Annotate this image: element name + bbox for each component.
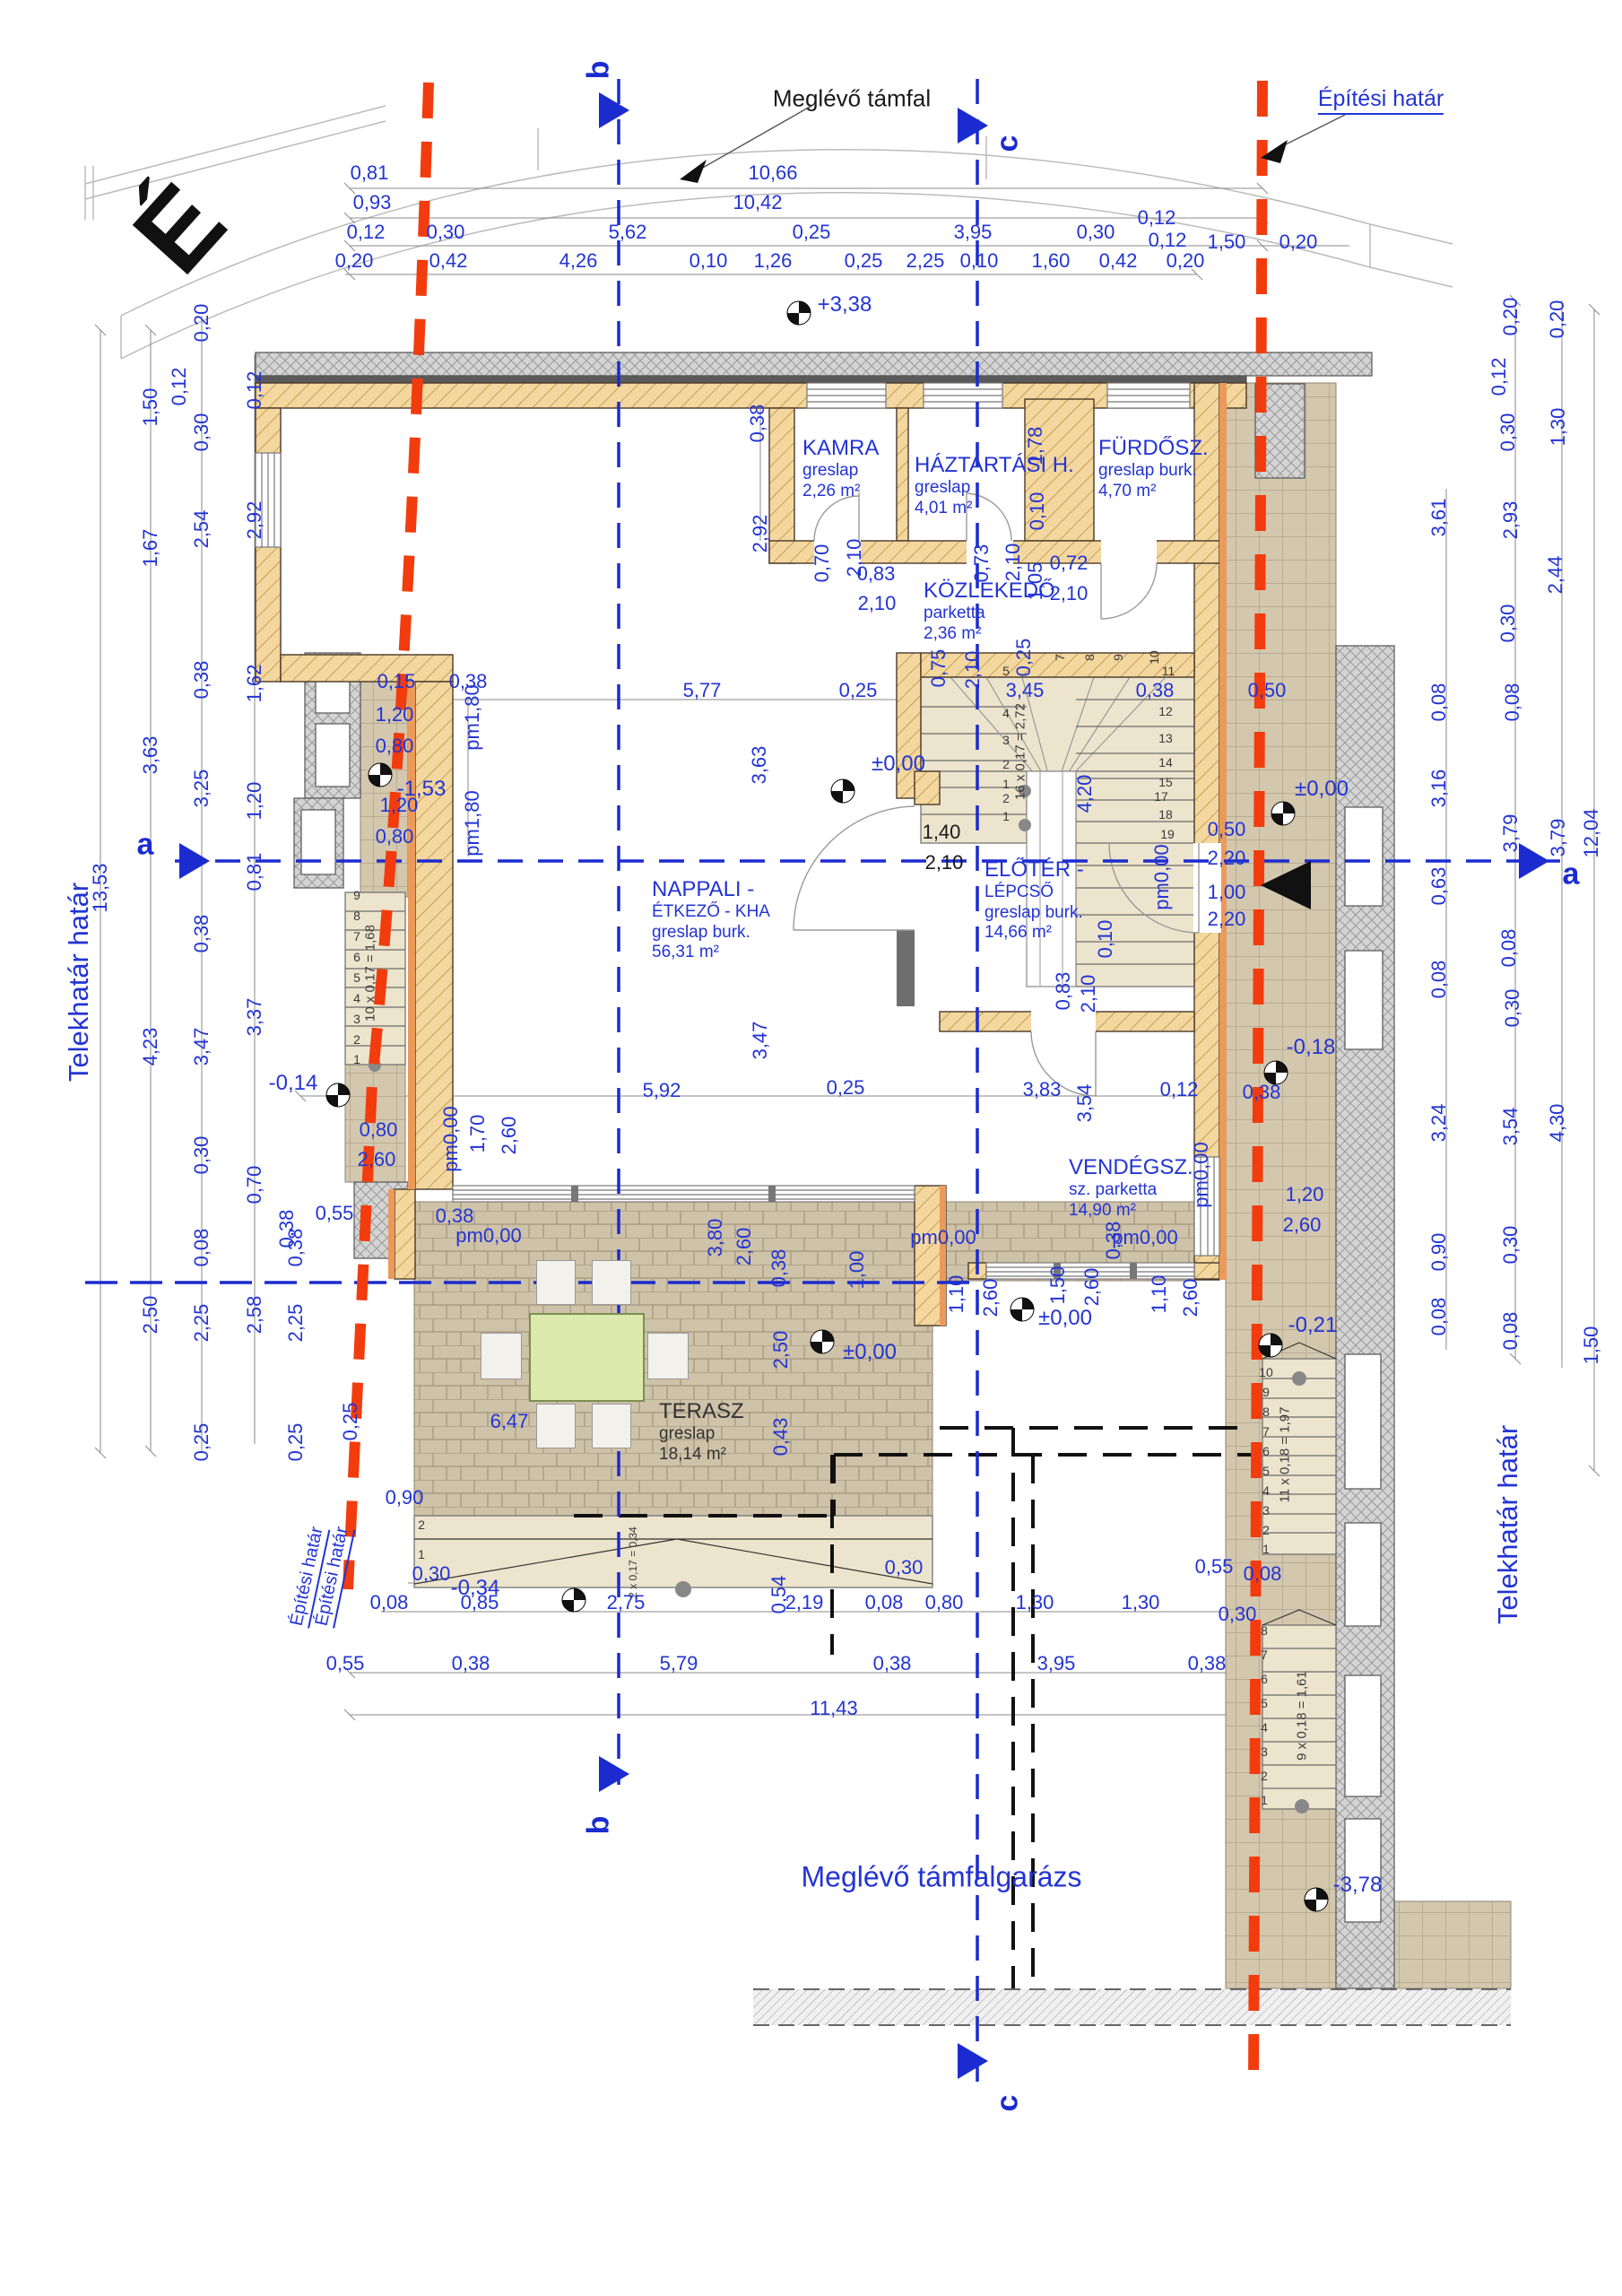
dim-label: 0,12 xyxy=(1160,1080,1199,1100)
dim-label: 0,12 xyxy=(1149,230,1187,250)
stair-tread-number: 17 xyxy=(1154,790,1168,803)
dim-label: 0,12 xyxy=(245,371,265,410)
dim-label: 2,10 xyxy=(1050,584,1089,604)
dim-label: 5,92 xyxy=(643,1081,681,1100)
dim-label: 0,20 xyxy=(335,251,374,271)
dim-label: pm0,00 xyxy=(910,1228,976,1248)
stair-tread-number: 18 xyxy=(1158,808,1173,821)
dim-label: 0,30 xyxy=(1077,222,1115,242)
dim-label: 0,08 xyxy=(370,1593,409,1613)
terrace-chair xyxy=(536,1404,576,1448)
dim-label: 1,30 xyxy=(1548,408,1568,447)
level-value: -3,78 xyxy=(1333,1874,1383,1896)
dim-label: 0,38 xyxy=(452,1654,490,1674)
dim-label: 1,62 xyxy=(245,665,265,703)
dim-label: 0,30 xyxy=(192,413,212,452)
dim-label: 0,25 xyxy=(286,1423,306,1462)
dim-label: 1,00 xyxy=(847,1251,867,1290)
dim-label: 1,00 xyxy=(1208,883,1246,902)
stair-tread-number: 5 xyxy=(1261,1697,1268,1709)
dim-label: 3,47 xyxy=(750,1022,770,1060)
dim-label: 0,10 xyxy=(960,251,999,271)
room-detail: greslap burk. xyxy=(984,903,1084,923)
room-detail: 56,31 m² xyxy=(652,943,770,962)
dim-label: 0,30 xyxy=(412,1564,451,1584)
dim-label: 0,25 xyxy=(341,1403,360,1441)
dim-label: 1,70 xyxy=(468,1115,488,1153)
dim-label: 2,60 xyxy=(1181,1279,1201,1318)
dim-label: 0,55 xyxy=(1195,1557,1234,1577)
dim-label: 0,38 xyxy=(1104,1222,1123,1260)
stair-tread-number: 2 xyxy=(353,1033,360,1046)
section-marker-b-top: b xyxy=(582,61,617,80)
stair-tread-number: 13 xyxy=(1158,732,1173,744)
dim-label: 2,50 xyxy=(141,1296,160,1335)
stair-formula-label: 10 x 0,17 = 1,68 xyxy=(364,925,377,1022)
stair-tread-number: 5 xyxy=(353,971,360,984)
stair-tread-number: 6 xyxy=(353,951,360,963)
stair-tread-number: 2 xyxy=(1002,792,1010,804)
dim-label: 4,20 xyxy=(1075,775,1095,813)
stair-tread-number: 7 xyxy=(1262,1425,1270,1438)
dim-label: 0,38 xyxy=(277,1210,297,1248)
dim-label: 0,83 xyxy=(1054,972,1073,1011)
level-value: -1,53 xyxy=(397,778,447,800)
room-detail: ÉTKEZŐ - KHA xyxy=(652,902,770,922)
dim-label: 0,30 xyxy=(1498,604,1518,643)
level-value: -0,18 xyxy=(1287,1037,1336,1058)
stair-tread-number: 8 xyxy=(1261,1624,1268,1637)
dim-label: 0,90 xyxy=(386,1488,424,1508)
dim-label: 2,93 xyxy=(1501,501,1521,540)
section-marker-c-bottom: c xyxy=(991,2095,1026,2112)
dim-label: 0,30 xyxy=(1219,1605,1257,1624)
room-detail: LÉPCSŐ xyxy=(984,883,1084,902)
room-label-nappali: NAPPALI -ÉTKEZŐ - KHAgreslap burk.56,31 … xyxy=(652,877,770,963)
dim-label: 1,67 xyxy=(141,529,160,568)
stair-tread-number: 10 xyxy=(1148,650,1160,665)
dim-label: 0,08 xyxy=(1429,961,1449,999)
dim-label: 0,30 xyxy=(192,1136,212,1175)
dim-label: 6,47 xyxy=(490,1412,529,1431)
dim-label: 3,83 xyxy=(1023,1080,1062,1100)
stair-tread-number: 1 xyxy=(418,1548,425,1561)
room-name: TERASZ xyxy=(659,1399,744,1424)
stair-tread-number: 4 xyxy=(1261,1721,1268,1734)
dim-label: 0,93 xyxy=(353,193,392,213)
dim-label: 0,10 xyxy=(1096,920,1115,959)
dim-label: pm0,00 xyxy=(455,1226,521,1246)
dim-label: 0,30 xyxy=(885,1558,924,1578)
stair-tread-number: 7 xyxy=(1261,1648,1268,1661)
dim-label: 2,60 xyxy=(1082,1268,1102,1307)
stair-tread-number: 2 xyxy=(1262,1524,1270,1536)
dim-label: 0,90 xyxy=(1429,1233,1449,1272)
plan-linework xyxy=(0,0,1622,2296)
room-detail: greslap burk. xyxy=(652,923,770,943)
stair-tread-number: 4 xyxy=(1002,707,1010,719)
dim-label: 0,25 xyxy=(793,222,831,242)
dim-label: 0,63 xyxy=(1429,867,1449,906)
room-detail: greslap burk. xyxy=(1098,461,1209,481)
dim-label: 0,12 xyxy=(169,368,189,406)
dim-label: 3,47 xyxy=(192,1028,212,1066)
dim-label: 3,54 xyxy=(1075,1084,1095,1123)
terrace-chair xyxy=(592,1404,631,1448)
dim-label: 0,25 xyxy=(192,1423,212,1462)
level-value: ±0,00 xyxy=(1295,778,1349,800)
survey-lines xyxy=(85,106,1453,359)
dim-label: 12,04 xyxy=(1582,808,1601,857)
dim-label: 0,50 xyxy=(1248,681,1287,700)
level-marker-icon xyxy=(1010,1298,1035,1322)
room-name: ELŐTÉR - xyxy=(984,857,1084,883)
dim-label: 0,83 xyxy=(857,564,896,584)
stair-tread-number: 4 xyxy=(1262,1484,1270,1497)
room-name: FÜRDŐSZ. xyxy=(1098,436,1209,461)
room-name: KÖZLEKEDŐ xyxy=(924,578,1055,604)
dim-label: 3,25 xyxy=(192,770,212,808)
terrace-table xyxy=(529,1313,645,1402)
dim-label: 1,50 xyxy=(1208,232,1246,252)
stair-tread-number: 3 xyxy=(1002,734,1010,746)
dim-label: 0,38 xyxy=(436,1206,474,1226)
dim-label: 0,42 xyxy=(429,251,468,271)
terrace-chair xyxy=(481,1333,522,1379)
room-detail: greslap xyxy=(659,1424,744,1444)
dim-label: 2,60 xyxy=(1283,1215,1322,1235)
dim-label: 2,25 xyxy=(286,1304,306,1343)
level-marker-icon xyxy=(1259,1334,1283,1358)
dim-label: 3,24 xyxy=(1429,1104,1449,1143)
stair-tread-number: 12 xyxy=(1158,705,1173,717)
dim-label: 0,12 xyxy=(1138,208,1176,228)
dim-label: 0,08 xyxy=(1499,929,1519,968)
dim-label: 0,25 xyxy=(839,681,878,700)
dim-label: 0,80 xyxy=(360,1120,398,1140)
room-detail: 4,01 m² xyxy=(915,499,1074,518)
bottom-strip xyxy=(753,1989,1511,2025)
stair-tread-number: 8 xyxy=(1083,654,1096,661)
dim-label: 0,08 xyxy=(1429,1298,1449,1336)
stair-tread-number: 7 xyxy=(1054,654,1066,661)
dim-label: 2,60 xyxy=(981,1279,1001,1318)
stair-tread-number: 9 xyxy=(1262,1386,1270,1398)
dim-label: 2,92 xyxy=(245,501,265,540)
dim-label: 0,30 xyxy=(1498,413,1518,452)
room-name: VENDÉGSZ. xyxy=(1069,1155,1193,1180)
dim-label: 13,53 xyxy=(91,863,110,912)
dim-label: 2,10 xyxy=(858,594,897,613)
dim-label: 0,08 xyxy=(865,1593,904,1613)
room-detail: 2,26 m² xyxy=(802,482,879,501)
dim-label: 3,54 xyxy=(1501,1108,1521,1146)
level-value: ±0,00 xyxy=(843,1342,897,1363)
floor-plan-canvas: É Meglévő támfal Építési határ Telekhatá… xyxy=(0,0,1622,2296)
dim-label: 0,70 xyxy=(812,544,832,583)
dim-label: 0,38 xyxy=(1243,1083,1281,1102)
dim-label: 2,25 xyxy=(192,1304,212,1343)
dim-label: 0,80 xyxy=(376,827,414,847)
stair-formula-label: 9 x 0,18 = 1,61 xyxy=(1296,1671,1309,1761)
dim-label: 3,63 xyxy=(750,746,769,785)
dim-label: 1,30 xyxy=(1122,1593,1160,1613)
dim-label: 0,15 xyxy=(377,672,416,691)
dim-label: pm1,80 xyxy=(463,790,482,856)
dim-label: 0,50 xyxy=(1208,820,1246,839)
level-value: +3,38 xyxy=(818,294,872,316)
dim-label: 2,10 xyxy=(1079,975,1098,1013)
dim-label: 0,20 xyxy=(1279,232,1318,252)
dim-label: pm1,80 xyxy=(463,684,482,750)
dim-label: 2,10 xyxy=(1003,544,1023,582)
stair-tread-number: 2 xyxy=(1002,758,1010,770)
stair-tread-number: 2 xyxy=(1261,1770,1268,1782)
dim-label: 0,10 xyxy=(690,251,728,271)
dim-label: 0,43 xyxy=(771,1418,791,1457)
dim-label: 0,30 xyxy=(427,222,465,242)
room-label-eloter: ELŐTÉR -LÉPCSŐgreslap burk.14,66 m² xyxy=(984,857,1084,944)
dim-label: 0,12 xyxy=(1489,358,1509,396)
dim-label: 3,79 xyxy=(1548,819,1568,857)
section-marker-a-right: a xyxy=(1563,857,1580,892)
dim-label: 2,44 xyxy=(1546,556,1566,595)
room-detail: 14,90 m² xyxy=(1069,1201,1193,1221)
level-marker-icon xyxy=(1271,802,1296,826)
dim-label: 0,08 xyxy=(1501,1312,1521,1351)
dim-label: 0,38 xyxy=(1188,1654,1227,1674)
dim-label: 1,20 xyxy=(245,782,265,821)
dim-label: pm0,00 xyxy=(1192,1142,1211,1207)
dim-label: 0,08 xyxy=(192,1229,212,1267)
dim-label: 1,26 xyxy=(754,251,793,271)
dim-label: 3,79 xyxy=(1501,814,1521,853)
dim-label: 0,73 xyxy=(972,544,992,583)
stair-tread-number: 7 xyxy=(353,930,360,943)
dim-label: 0,38 xyxy=(1136,681,1175,700)
dim-label: 1,20 xyxy=(1286,1185,1324,1205)
level-value: ±0,00 xyxy=(872,753,925,775)
stair-tread-number: 3 xyxy=(1261,1745,1268,1758)
stair-tread-number: 1 xyxy=(353,1053,360,1065)
stair-tread-number: 8 xyxy=(353,909,360,922)
level-marker-icon xyxy=(326,1083,351,1108)
stair-tread-number: 5 xyxy=(1002,665,1010,677)
level-marker-icon xyxy=(1305,1888,1329,1912)
stair-tread-number: 9 xyxy=(1112,654,1124,661)
terrace-chair xyxy=(647,1333,689,1379)
dim-label: 3,95 xyxy=(1037,1654,1076,1674)
dim-label: 3,80 xyxy=(706,1219,725,1257)
level-marker-icon xyxy=(811,1330,835,1354)
dim-label: 0,38 xyxy=(192,915,212,953)
dim-label: 0,55 xyxy=(316,1204,354,1223)
dim-label: 1,50 xyxy=(141,388,160,427)
dim-label: 5,79 xyxy=(660,1654,698,1674)
dim-label: 1,30 xyxy=(1016,1593,1054,1613)
dim-label: 5,77 xyxy=(683,681,722,700)
dim-label: 0,72 xyxy=(1050,553,1089,573)
room-label-furdosz: FÜRDŐSZ.greslap burk.4,70 m² xyxy=(1098,436,1209,501)
room-label-kamra: KAMRAgreslap2,26 m² xyxy=(802,436,879,501)
stair-tread-number: 10 xyxy=(1259,1366,1273,1378)
dim-label: 0,20 xyxy=(1501,298,1521,336)
dim-label: 0,38 xyxy=(748,404,768,443)
dim-label: 0,70 xyxy=(245,1166,265,1205)
dim-label: 3,95 xyxy=(954,222,993,242)
dim-label: 0,80 xyxy=(925,1593,964,1613)
dim-label: 1,60 xyxy=(1032,251,1071,271)
dim-label: 11,43 xyxy=(810,1699,857,1718)
level-marker-icon xyxy=(562,1588,586,1613)
level-marker-icon xyxy=(787,301,811,326)
stair-tread-number: 5 xyxy=(1262,1465,1270,1477)
dim-label: 0,20 xyxy=(192,304,212,343)
dim-label: 0,38 xyxy=(873,1654,912,1674)
dim-label: 0,55 xyxy=(326,1654,365,1674)
stair-tread-number: 9 xyxy=(353,889,360,901)
dim-label: 1,50 xyxy=(1048,1266,1068,1305)
room-label-vendegsz: VENDÉGSZ.sz. parketta14,90 m² xyxy=(1069,1155,1193,1221)
stair-tread-number: 11 xyxy=(1162,665,1175,677)
stair-tread-number: 3 xyxy=(1262,1504,1270,1517)
dim-label: 1,50 xyxy=(1582,1326,1601,1365)
dim-label: 0,38 xyxy=(192,661,212,700)
room-detail: 4,70 m² xyxy=(1098,482,1209,501)
stair-tread-number: 1 xyxy=(1002,810,1010,822)
dim-label: 0,25 xyxy=(845,251,883,271)
stair-formula-label: 11 x 0,18 = 1,97 xyxy=(1279,1407,1292,1503)
room-detail: greslap xyxy=(915,478,1074,498)
dim-label: 2,20 xyxy=(1208,909,1246,929)
dim-label: 0,38 xyxy=(769,1249,789,1288)
terrace-chair xyxy=(536,1260,576,1305)
stair-tread-number: 1 xyxy=(1261,1794,1268,1806)
room-label-terasz: TERASZgreslap18,14 m² xyxy=(659,1399,744,1465)
dim-label: 0,30 xyxy=(1501,1226,1521,1265)
dim-label: 5,62 xyxy=(609,222,647,242)
dim-label: 1,10 xyxy=(947,1275,967,1314)
dim-label: 2,58 xyxy=(245,1296,265,1335)
dim-label: 2,10 xyxy=(925,853,964,873)
terrace-chair xyxy=(592,1260,631,1305)
building-boundary-label-top: Építési határ xyxy=(1318,86,1444,115)
dim-label: 3,16 xyxy=(1429,770,1449,808)
stair-tread-number: 6 xyxy=(1262,1445,1270,1457)
dim-label: 3,45 xyxy=(1006,681,1045,700)
room-name: HÁZTARTÁSI H. xyxy=(915,453,1074,478)
dim-label: 3,63 xyxy=(141,736,160,775)
dim-label: 1,40 xyxy=(923,822,961,842)
dim-label: 2,20 xyxy=(1208,848,1246,868)
dim-label: 4,23 xyxy=(141,1028,160,1066)
dim-label: 2,19 xyxy=(785,1593,824,1613)
dim-label: 0,20 xyxy=(1167,251,1205,271)
stair-tread-number: 1 xyxy=(1262,1543,1270,1555)
dim-label: 0,08 xyxy=(1429,683,1449,722)
dim-label: 4,26 xyxy=(559,251,598,271)
dim-label: 0,42 xyxy=(1099,251,1138,271)
room-detail: 18,14 m² xyxy=(659,1445,744,1465)
level-value: ±0,00 xyxy=(1038,1308,1092,1329)
dim-label: 1,10 xyxy=(1149,1275,1169,1314)
section-marker-c-top: c xyxy=(991,135,1026,152)
dim-label: 4,30 xyxy=(1548,1104,1567,1143)
room-label-kozlekedo: KÖZLEKEDŐparketta2,36 m² xyxy=(924,578,1055,644)
dim-label: pm0,00 xyxy=(1152,844,1172,909)
dim-label: pm0,00 xyxy=(441,1106,461,1171)
stair-tread-number: 1 xyxy=(1002,778,1010,790)
level-marker-icon xyxy=(1264,1061,1288,1085)
stair-formula-label: 16 x 0,17 = 2,72 xyxy=(1014,703,1028,800)
level-marker-icon xyxy=(831,779,855,804)
dim-label: 0,75 xyxy=(929,649,949,688)
stair-tread-number: 6 xyxy=(1261,1673,1268,1685)
stair-tread-number: 2 xyxy=(418,1518,425,1531)
room-detail: greslap xyxy=(802,461,879,481)
stair-tread-number: 4 xyxy=(353,992,360,1004)
dim-label: 10,66 xyxy=(748,163,797,183)
dim-label: 3,61 xyxy=(1429,499,1449,537)
dim-label: 2,25 xyxy=(906,251,945,271)
dim-label: 2,60 xyxy=(499,1117,519,1155)
stair-formula-label: 2 x 0,17 = 0,34 xyxy=(628,1526,638,1598)
room-detail: 14,66 m² xyxy=(984,923,1084,943)
dim-label: 0,80 xyxy=(376,736,414,756)
room-name: KAMRA xyxy=(802,436,879,461)
dim-label: 10,42 xyxy=(733,193,782,213)
stair-tread-number: 19 xyxy=(1160,828,1175,840)
stair-tread-number: 15 xyxy=(1158,776,1173,788)
room-detail: sz. parketta xyxy=(1069,1180,1193,1200)
dim-label: 2,60 xyxy=(358,1150,396,1170)
level-value: -0,21 xyxy=(1288,1315,1338,1336)
dim-label: 0,08 xyxy=(1503,683,1522,722)
section-marker-a-left: a xyxy=(137,828,154,863)
section-marker-b-bottom: b xyxy=(582,1816,617,1835)
plot-boundary-label-right: Telekhatár határ xyxy=(1492,1425,1524,1624)
room-detail: parketta xyxy=(924,604,1055,623)
dim-label: 0,08 xyxy=(1244,1564,1282,1584)
level-marker-icon xyxy=(369,763,393,787)
dim-label: 2,50 xyxy=(771,1331,791,1370)
level-value: -0,34 xyxy=(451,1578,500,1599)
dim-label: 0,12 xyxy=(347,222,386,242)
stair-tread-number: 3 xyxy=(353,1013,360,1025)
dim-label: 0,81 xyxy=(351,163,389,183)
dim-label: 0,30 xyxy=(1503,989,1522,1028)
room-name: NAPPALI - xyxy=(652,877,770,902)
dim-label: 0,81 xyxy=(245,853,265,891)
dim-label: 0,20 xyxy=(1548,300,1567,339)
room-detail: 2,36 m² xyxy=(924,624,1055,644)
dim-label: 2,54 xyxy=(192,510,212,549)
level-value: -0,14 xyxy=(269,1073,318,1094)
dim-label: 0,25 xyxy=(827,1078,865,1098)
stair-tread-number: 8 xyxy=(1262,1405,1270,1418)
dim-label: 2,10 xyxy=(963,651,983,690)
existing-retaining-wall-label: Meglévő támfal xyxy=(773,85,931,113)
dim-label: 1,20 xyxy=(376,705,414,725)
room-label-haztartasi: HÁZTARTÁSI H.greslap4,01 m² xyxy=(915,453,1074,518)
stair-tread-number: 14 xyxy=(1158,756,1173,769)
dim-label: 2,92 xyxy=(750,515,770,553)
dim-label: 3,37 xyxy=(245,998,265,1037)
garage-label: Meglévő támfalgarázs xyxy=(801,1861,1081,1894)
dim-label: 2,60 xyxy=(734,1228,754,1266)
